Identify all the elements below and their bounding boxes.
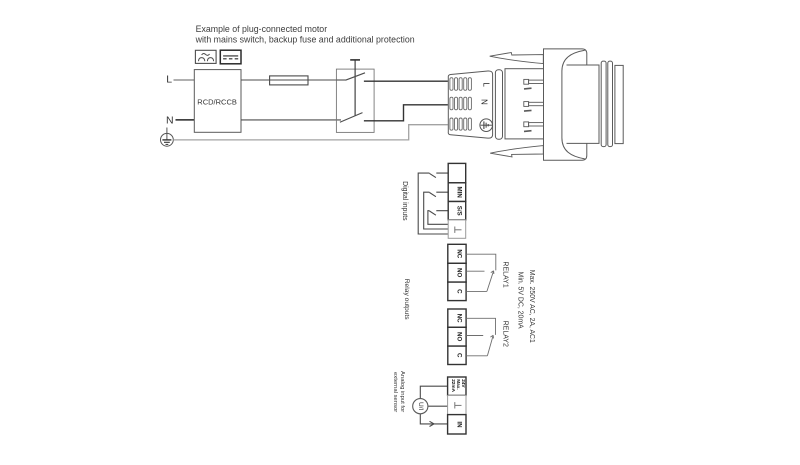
svg-text:NO: NO [456,268,463,277]
svg-text:C: C [456,289,463,294]
svg-text:Analog input for: Analog input for [399,371,405,412]
svg-text:Max. 250V AC, 2A, AC1: Max. 250V AC, 2A, AC1 [528,270,535,343]
svg-text:Min. 5V DC, 20mA: Min. 5V DC, 20mA [517,272,524,329]
svg-text:RELAY2: RELAY2 [502,321,509,347]
svg-text:NC: NC [456,314,463,323]
svg-text:L: L [481,83,490,88]
svg-text:Example of plug-connected moto: Example of plug-connected motor [196,24,328,34]
svg-text:22mA: 22mA [451,379,456,392]
svg-text:S/S: S/S [456,206,463,216]
svg-text:N: N [166,114,174,126]
svg-text:NC: NC [456,249,463,258]
svg-text:N: N [479,99,488,105]
svg-text:MIN: MIN [456,187,463,199]
svg-text:Relay outputs: Relay outputs [403,279,410,321]
svg-text:with mains switch, backup fuse: with mains switch, backup fuse and addit… [195,34,415,44]
svg-text:RCD/RCCB: RCD/RCCB [197,97,237,106]
svg-text:NO: NO [456,332,463,341]
svg-text:external sensor: external sensor [392,372,398,412]
svg-text:RELAY1: RELAY1 [502,261,509,287]
svg-text:L: L [166,74,172,86]
svg-text:Digital inputs: Digital inputs [401,181,408,221]
svg-text:IN: IN [456,421,463,428]
svg-text:C: C [456,353,463,358]
svg-text:U/I: U/I [417,402,424,411]
